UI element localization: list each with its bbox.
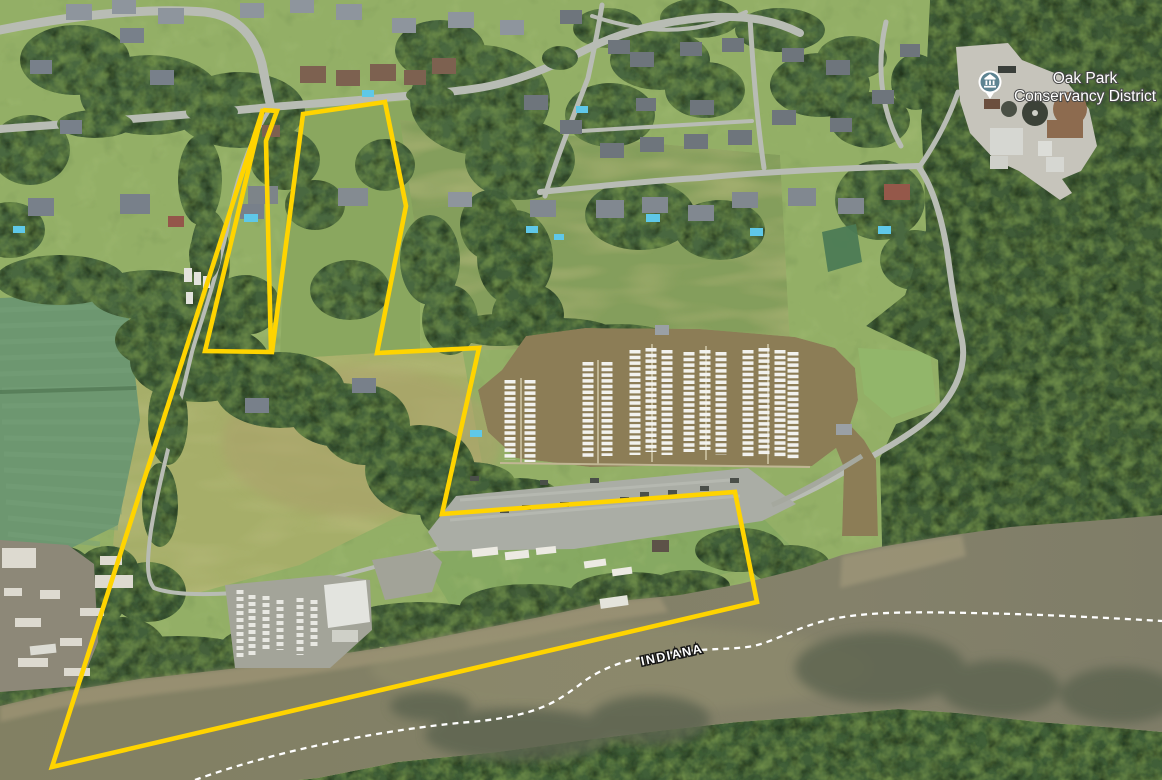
svg-text:Conservancy District: Conservancy District	[1014, 88, 1157, 105]
svg-text:Oak Park: Oak Park	[1053, 70, 1118, 87]
